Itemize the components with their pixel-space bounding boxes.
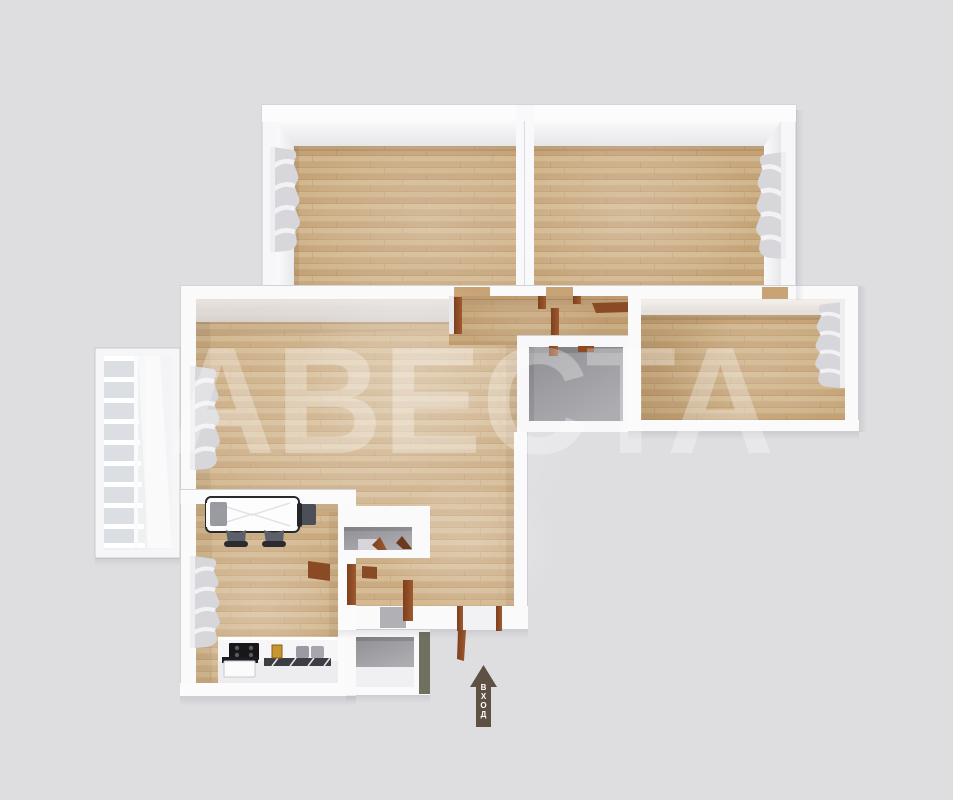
svg-text:Х: Х: [481, 692, 487, 701]
svg-text:В: В: [481, 683, 487, 692]
svg-text:АВЕСТА: АВЕСТА: [168, 316, 774, 486]
svg-text:О: О: [480, 701, 486, 710]
svg-text:Д: Д: [481, 710, 487, 719]
